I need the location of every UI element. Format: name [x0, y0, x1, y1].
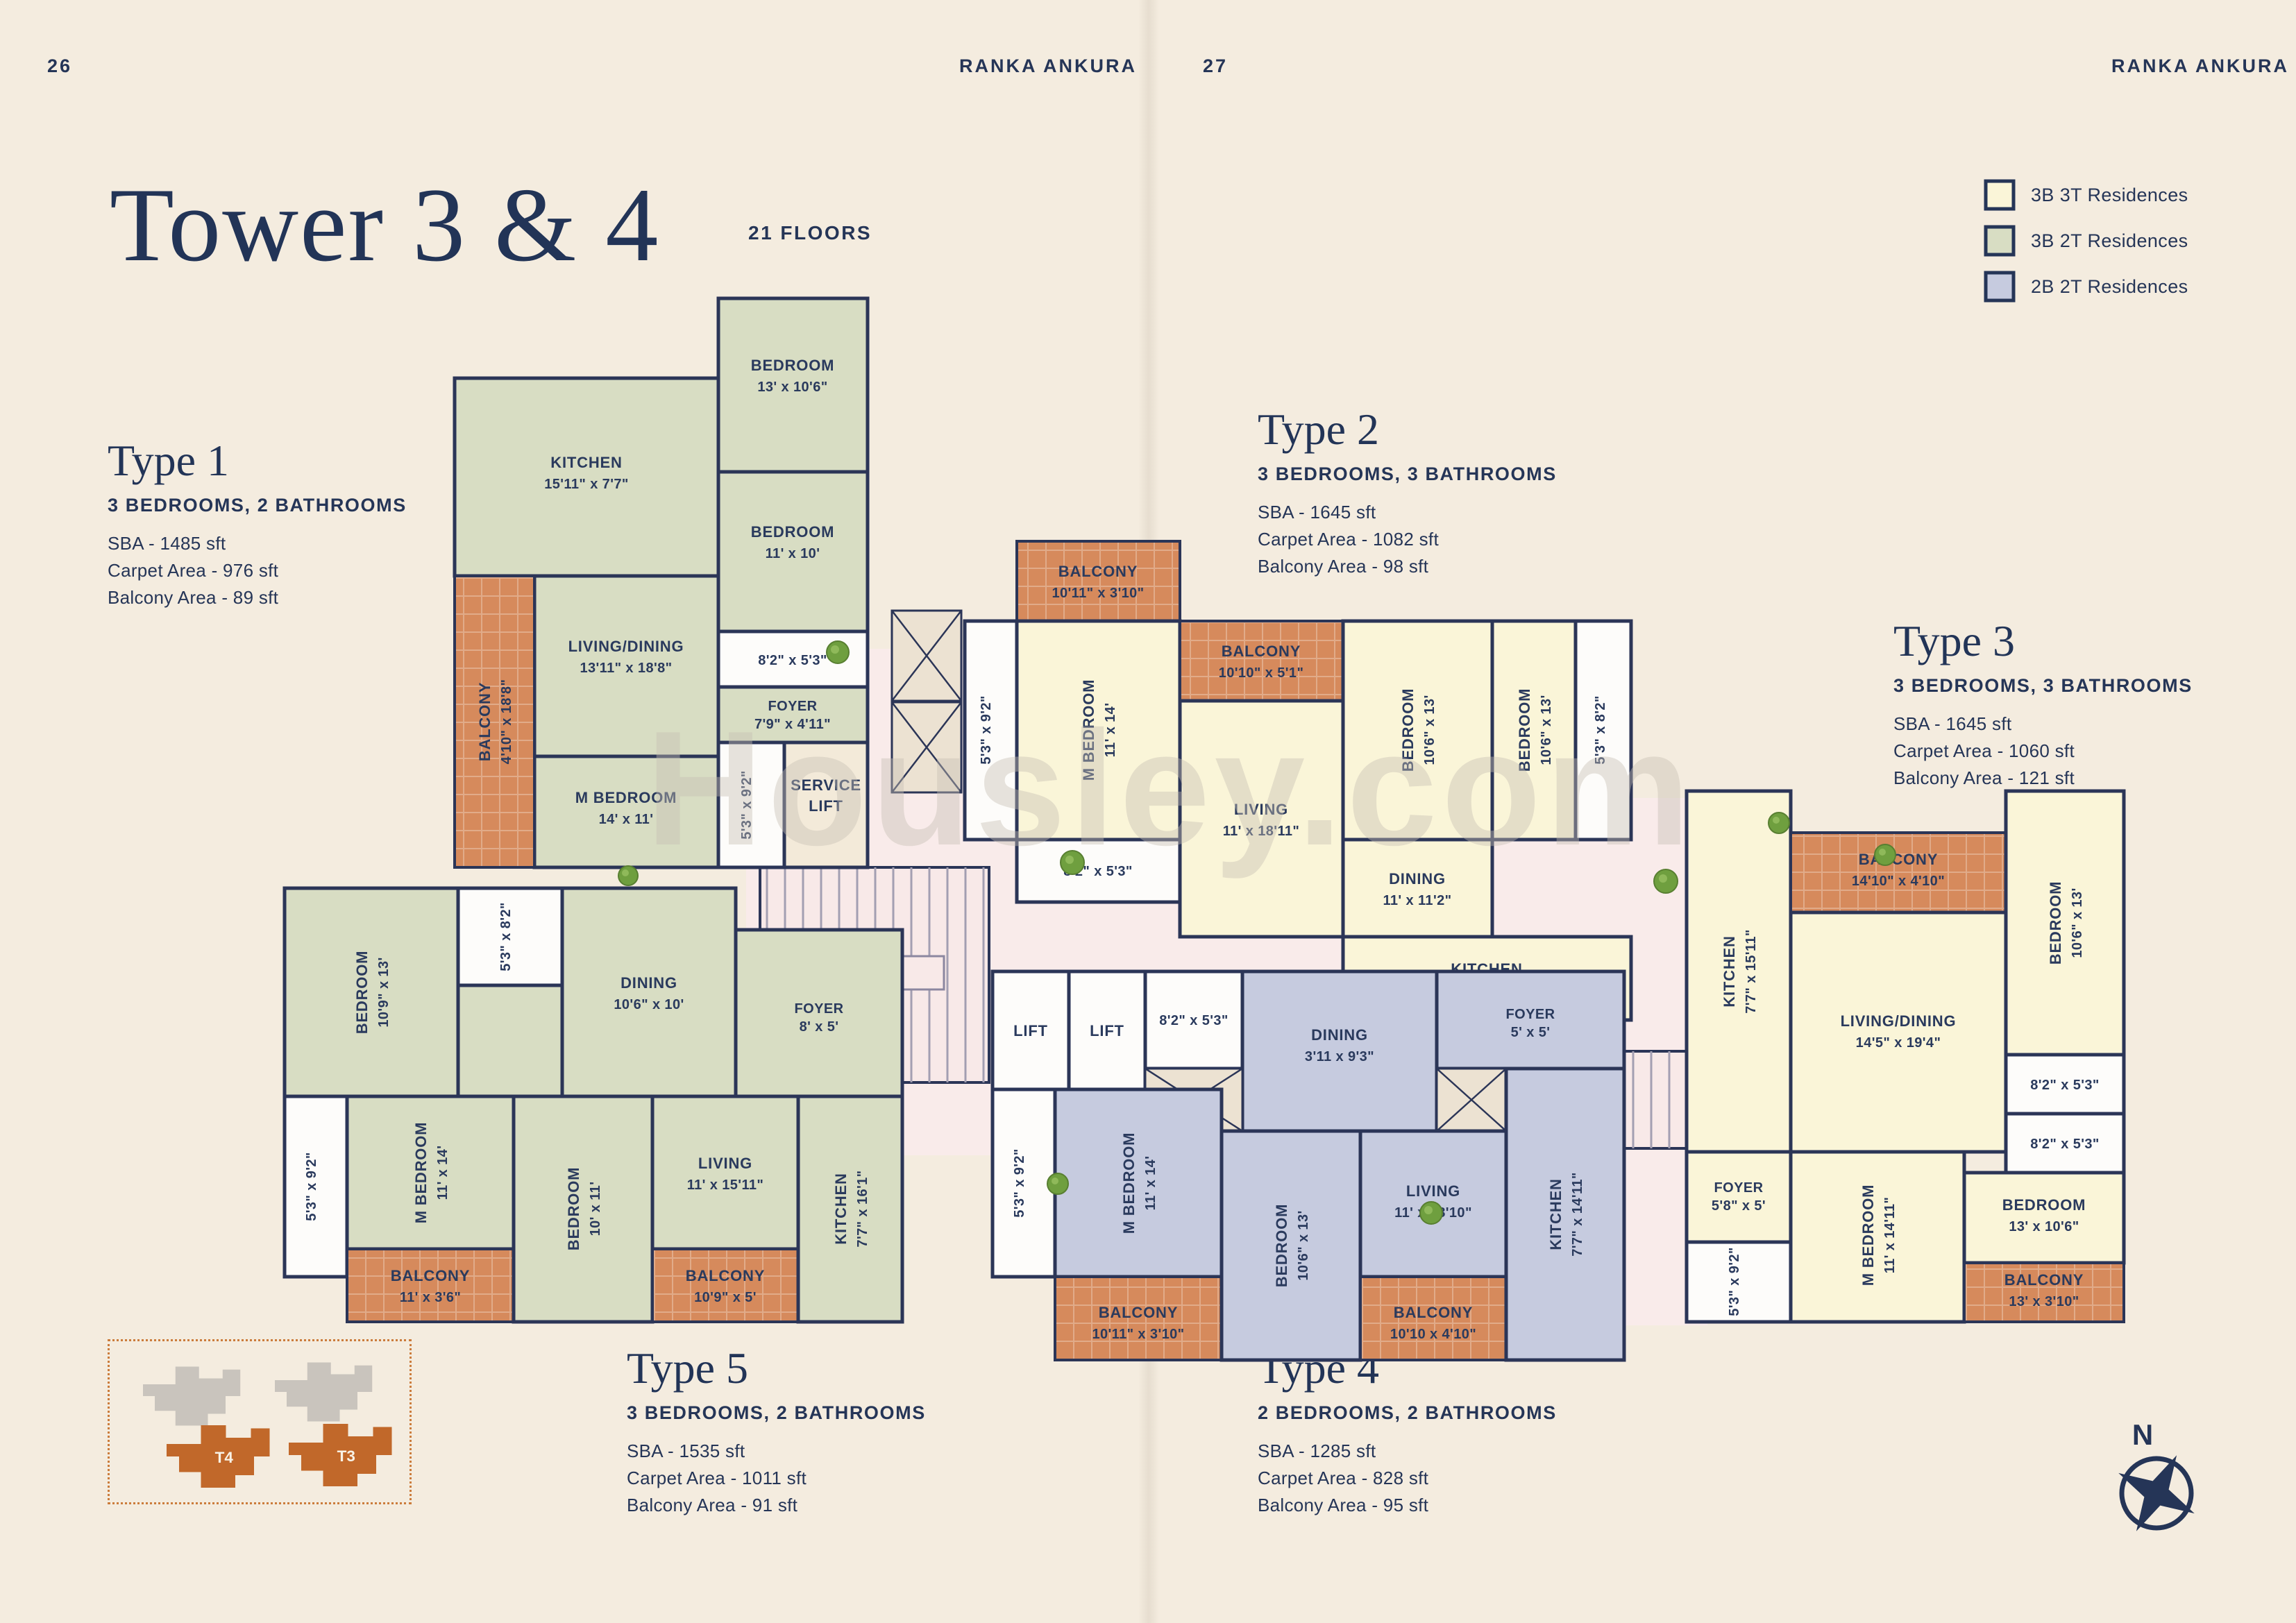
duct-shaft — [892, 702, 961, 792]
t2-bedroom2-room — [1343, 621, 1492, 840]
t3-foyer-room — [1687, 1152, 1791, 1242]
t1-bath1-label: 8'2" x 5'3" — [758, 653, 827, 668]
t2-balcony1 — [1017, 541, 1180, 621]
t2-dining-room — [1343, 840, 1492, 937]
unit-type4: LIFT LIFT 8'2" x 5'3" DINING3'11 x 9'3" … — [993, 971, 1624, 1360]
t3-kitchen-room — [1687, 791, 1791, 1152]
t5-bedroom2-room — [285, 888, 458, 1096]
t2-bath3-label: 5'3" x 8'2" — [1593, 695, 1608, 765]
t2-bath1-label: 5'3" x 9'2" — [979, 695, 994, 765]
t3-bedroom2-room — [2006, 791, 2124, 1055]
t4-kitchen-room — [1506, 1069, 1624, 1360]
t4-bedroom2-room — [1222, 1131, 1360, 1360]
t1-balcony — [455, 576, 534, 867]
t5-bath2-label: 5'3" x 9'2" — [304, 1152, 319, 1221]
t4-lift2-label: LIFT — [1090, 1022, 1124, 1039]
t1-bath2-label: 5'3" x 9'2" — [739, 770, 754, 840]
t5-living-room — [652, 1096, 798, 1249]
t2-living-room — [1180, 701, 1343, 937]
t3-living-dining-room — [1791, 912, 2006, 1152]
t4-bath1-label: 8'2" x 5'3" — [1159, 1013, 1229, 1028]
t3-bath2-label: 8'2" x 5'3" — [2030, 1137, 2100, 1152]
t2-bedroom3-room — [1492, 621, 1576, 840]
t3-balcony1 — [1791, 833, 2006, 912]
brochure-page: 26 RANKA ANKURA 27 RANKA ANKURA Tower 3 … — [0, 0, 2296, 1623]
t3-bath1-label: 8'2" x 5'3" — [2030, 1078, 2100, 1093]
t5-master-bedroom-room — [347, 1096, 514, 1249]
t5-kitchen-room — [798, 1096, 902, 1322]
unit-type1: KITCHEN15'11" x 7'7" BEDROOM13' x 10'6" … — [455, 298, 868, 867]
t5-bedroom3-room — [514, 1096, 652, 1322]
t3-master-bedroom-room — [1791, 1152, 1964, 1322]
t5-bath1-label: 5'3" x 8'2" — [498, 902, 514, 971]
unit-type3: KITCHEN7'7" x 15'11" BALCONY14'10" x 4'1… — [1687, 791, 2124, 1322]
t4-lift1-label: LIFT — [1013, 1022, 1048, 1039]
t5-balcony1 — [347, 1249, 514, 1322]
floor-plan: KITCHEN15'11" x 7'7" BEDROOM13' x 10'6" … — [0, 0, 2296, 1623]
t5-hall-room — [458, 985, 562, 1096]
t2-master-bedroom-room — [1017, 621, 1180, 840]
t3-bedroom3-room — [1964, 1173, 2124, 1263]
unit-type5: BEDROOM10'9" x 13' 5'3" x 8'2" DINING10'… — [285, 888, 902, 1322]
t4-duct-shaft — [1437, 1069, 1506, 1131]
t4-master-bedroom-room — [1055, 1089, 1222, 1277]
t5-balcony2 — [652, 1249, 798, 1322]
t2-balcony2 — [1180, 621, 1343, 701]
t5-dining-room — [562, 888, 736, 1096]
t4-bath2-label: 5'3" x 9'2" — [1012, 1148, 1027, 1218]
t3-bath3-label: 5'3" x 9'2" — [1727, 1247, 1742, 1316]
t1-foyer-room — [718, 687, 868, 742]
duct-shaft — [892, 611, 961, 701]
